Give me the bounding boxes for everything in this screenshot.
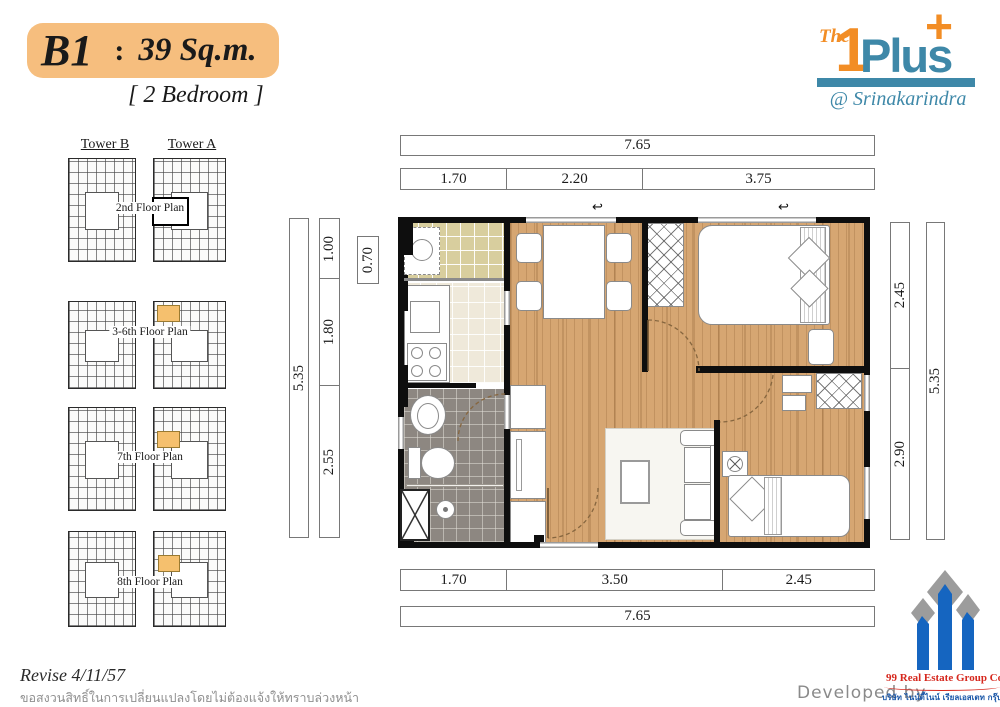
developer-name-th: บริษัท ไนน์ตี้ไนน์ เรียลเอสเตท กรุ๊ป จำก… [882, 691, 1000, 704]
arrow-mark: ↩ [778, 200, 789, 215]
dim-right-segments: 2.45 2.90 [890, 222, 910, 540]
dim-seg: 3.50 [506, 570, 722, 590]
plus-sign-icon: + [925, 4, 953, 52]
tower-b-header: Tower B [65, 137, 145, 153]
unit-highlight-floor7 [157, 431, 180, 448]
brand-logo: The 1 Plus + @ Srinakarindra [805, 16, 993, 116]
tower-b-floor3-6-thumb [68, 301, 136, 389]
door-leaves [548, 320, 648, 538]
floor3-6-label: 3-6th Floor Plan [109, 326, 190, 338]
dim-bottom-segments: 1.70 3.50 2.45 [400, 569, 875, 591]
brand-underline-bar [817, 78, 975, 87]
bedroom-subtitle: [ 2 Bedroom ] [128, 82, 264, 109]
dim-left-outer-value: 5.35 [291, 365, 308, 391]
developer-name-en: 99 Real Estate Group Co.,Ltd [886, 672, 998, 684]
unit-code: B1 [41, 25, 92, 76]
dim-seg: 2.55 [320, 385, 339, 537]
dim-left-segments: 1.00 1.80 2.55 [319, 218, 340, 538]
dim-seg: 1.70 [401, 169, 506, 189]
plan-annotations [398, 217, 870, 548]
floor7-label: 7th Floor Plan [114, 451, 186, 463]
title-colon: : [114, 34, 124, 68]
unit-highlight-floor8 [158, 555, 180, 572]
dim-left-inner-value: 0.70 [360, 247, 377, 273]
dim-right-outer-value: 5.35 [927, 368, 944, 394]
dim-seg: 2.45 [891, 223, 909, 368]
dim-seg: 3.75 [642, 169, 874, 189]
dim-top-total-value: 7.65 [624, 137, 650, 154]
door-arcs [458, 320, 773, 538]
unit-highlight-floor3-6 [157, 305, 180, 322]
floor-plan-brochure: B1 : 39 Sq.m. [ 2 Bedroom ] The 1 Plus +… [0, 0, 1000, 707]
dim-seg: 1.80 [320, 278, 339, 385]
dim-right-outer: 5.35 [926, 222, 945, 540]
tower-a-header: Tower A [152, 137, 232, 153]
dim-seg: 1.00 [320, 219, 339, 278]
brand-location: @ Srinakarindra [813, 88, 983, 111]
floor8-label: 8th Floor Plan [114, 576, 186, 588]
dim-seg: 2.45 [722, 570, 874, 590]
thai-disclaimer: ขอสงวนสิทธิ์ในการเปลี่ยนแปลงโดยไม่ต้องแจ… [20, 688, 359, 707]
dim-top-total: 7.65 [400, 135, 875, 156]
arrow-mark: ↩ [592, 200, 603, 215]
dim-top-segments: 1.70 2.20 3.75 [400, 168, 875, 190]
dim-seg: 1.70 [401, 570, 506, 590]
dim-bottom-total-value: 7.65 [624, 608, 650, 625]
shaft-x-icon [402, 491, 428, 539]
unit-area: 39 Sq.m. [138, 32, 256, 69]
dim-left-outer: 5.35 [289, 218, 309, 538]
unit-title-badge: B1 : 39 Sq.m. [27, 23, 279, 78]
dim-seg: 2.90 [891, 368, 909, 539]
dim-seg: 2.20 [506, 169, 642, 189]
dim-bottom-total: 7.65 [400, 606, 875, 627]
dim-left-inner: 0.70 [357, 236, 379, 284]
developer-logo-icon [905, 570, 985, 674]
floor2-label: 2nd Floor Plan [113, 202, 187, 214]
main-floor-plan [398, 217, 870, 548]
fan-cross-icon [730, 459, 740, 469]
revise-note: Revise 4/11/57 [20, 665, 125, 686]
